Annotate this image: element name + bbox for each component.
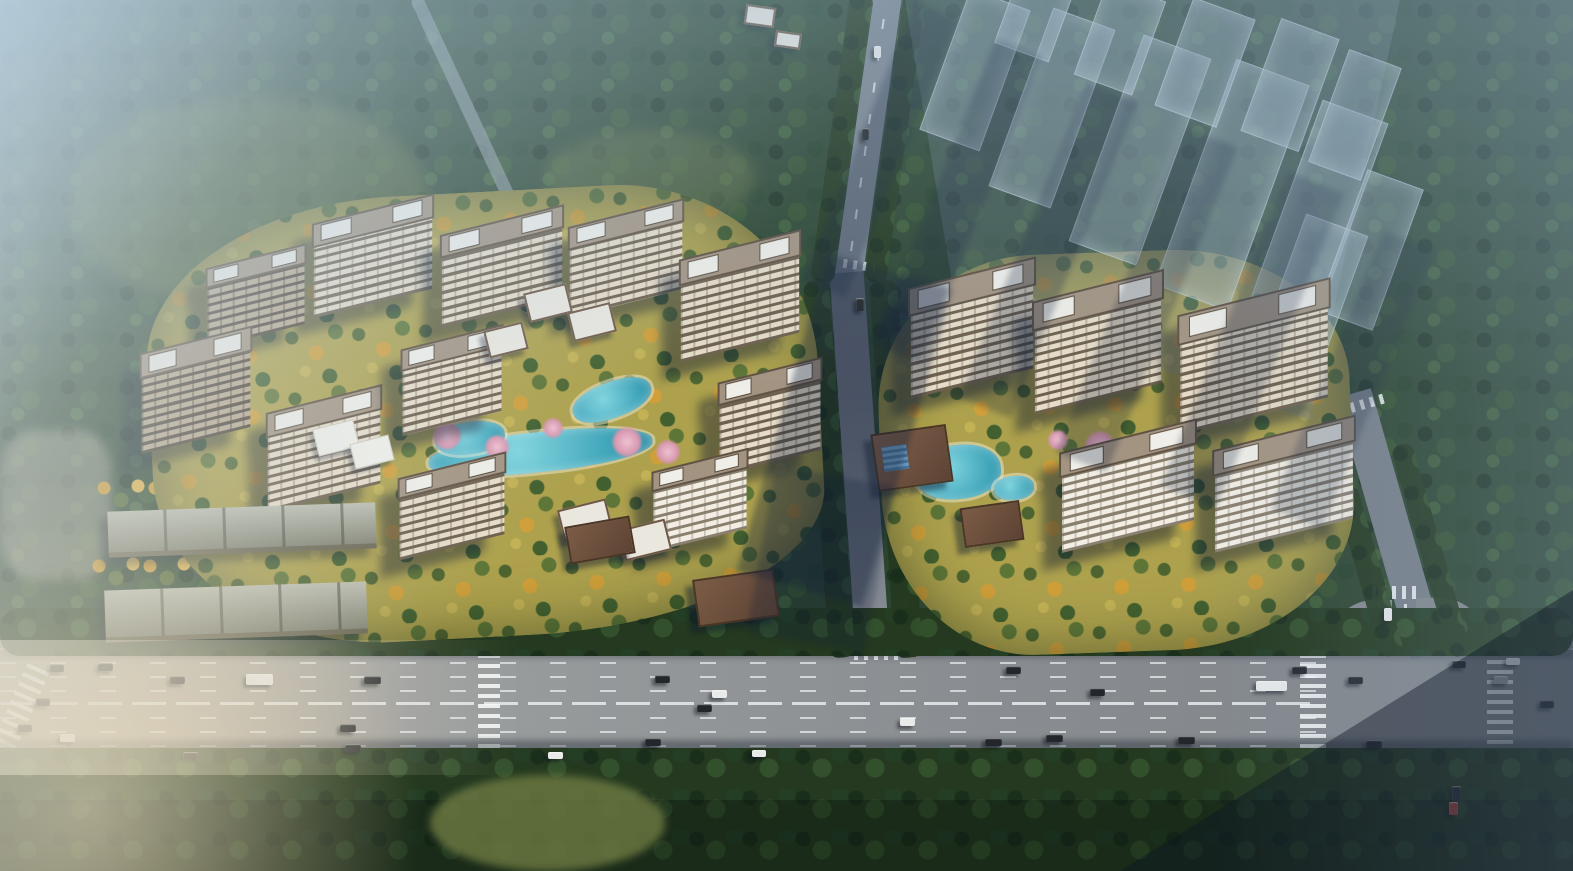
- tower-facade: [720, 381, 821, 475]
- vehicle: [697, 704, 712, 712]
- sunlight-glare: [0, 0, 1573, 871]
- vehicle: [1506, 658, 1520, 665]
- future-phase-massing: [994, 0, 1076, 63]
- residential-tower: [268, 384, 381, 511]
- tower-facade: [442, 229, 562, 328]
- pond: [912, 441, 1003, 504]
- low-rise-building: [774, 30, 802, 49]
- warehouse-building: [104, 581, 368, 642]
- lane-marking: [0, 676, 1320, 678]
- main-boulevard: [0, 648, 1573, 760]
- south-tree-belt: [0, 748, 1573, 871]
- vehicle: [712, 690, 727, 698]
- penthouse-box: [1151, 427, 1183, 450]
- building-shadow: [873, 38, 1043, 363]
- penthouse-box: [272, 250, 295, 268]
- low-rise-building: [557, 498, 613, 541]
- intersection-flare: [1362, 756, 1448, 808]
- future-phase-massing: [1252, 214, 1369, 387]
- tower-facade: [681, 257, 799, 363]
- grass-clearing: [430, 775, 665, 871]
- tower-roof: [311, 193, 434, 248]
- median-line: [0, 702, 1320, 705]
- intersection-flare: [1416, 598, 1488, 654]
- sky-haze: [0, 0, 1573, 871]
- vehicle: [1046, 734, 1063, 742]
- vehicle: [548, 752, 563, 759]
- crosswalk: [478, 652, 500, 758]
- vehicle: [655, 675, 670, 683]
- road-edge-line: [0, 648, 1573, 650]
- vehicle: [900, 718, 915, 726]
- tower-roof: [1177, 277, 1330, 346]
- penthouse-box: [577, 222, 604, 242]
- intersection-flare: [1330, 600, 1392, 652]
- meadow-clearing: [70, 95, 430, 310]
- penthouse-box: [1308, 423, 1341, 447]
- residential-tower: [570, 199, 683, 318]
- turn-arrow-marking: [1404, 604, 1407, 615]
- forest-trail-road: [410, 0, 530, 231]
- street-tree-row: [864, 0, 926, 284]
- vacant-lot: [0, 430, 112, 580]
- blossom-trees: [1048, 430, 1068, 450]
- penthouse-box: [470, 458, 495, 476]
- low-rise-building: [523, 283, 573, 323]
- crosswalk: [0, 661, 50, 758]
- residential-tower: [1215, 415, 1353, 552]
- penthouse-box: [1043, 296, 1074, 321]
- pond: [426, 420, 654, 483]
- blossom-trees: [433, 422, 461, 450]
- penthouse-box: [1120, 277, 1151, 302]
- penthouse-box: [727, 379, 751, 399]
- pond: [993, 474, 1035, 502]
- pond: [567, 369, 656, 431]
- atmospheric-haze: [0, 0, 1573, 871]
- residential-tower: [653, 448, 746, 552]
- tower-facade: [268, 410, 381, 511]
- penthouse-box: [214, 264, 237, 282]
- residential-tower: [1180, 278, 1327, 434]
- sports-court: [349, 435, 394, 470]
- penthouse-box: [409, 346, 433, 365]
- building-shadow: [737, 253, 953, 606]
- blossom-trees: [612, 427, 642, 457]
- vehicle: [1090, 688, 1105, 696]
- street-tree-row: [0, 608, 1573, 656]
- crosswalk: [1300, 650, 1326, 758]
- residential-tower: [681, 230, 799, 363]
- vehicle: [1366, 740, 1382, 748]
- vehicle: [1452, 660, 1466, 668]
- tower-roof: [398, 451, 507, 500]
- residential-tower: [142, 326, 251, 454]
- penthouse-box: [149, 349, 175, 371]
- residential-tower: [1035, 270, 1161, 415]
- lane-marking: [0, 745, 1320, 747]
- crosswalk: [1437, 815, 1491, 840]
- penthouse-box: [760, 237, 789, 260]
- vehicle: [340, 724, 356, 732]
- gate-pavilion: [960, 500, 1025, 548]
- penthouse-box: [919, 283, 949, 308]
- road-edge-line: [0, 756, 1573, 758]
- cross-road-east-south: [1420, 746, 1525, 871]
- penthouse-box: [1071, 447, 1103, 470]
- tower-facade: [314, 218, 432, 318]
- vehicle: [60, 734, 75, 742]
- crosswalk: [1487, 648, 1513, 754]
- vehicle: [874, 46, 881, 58]
- glass-skylight: [881, 444, 909, 472]
- tower-facade: [570, 222, 683, 317]
- golden-tree-band: [90, 556, 375, 586]
- tower-roof: [718, 357, 823, 407]
- site-entry-road: [830, 271, 891, 658]
- penthouse-box: [716, 454, 738, 471]
- residential-tower: [442, 205, 562, 328]
- vehicle: [1449, 802, 1458, 815]
- vehicle-layer: [0, 0, 1573, 871]
- tower-roof: [401, 324, 504, 372]
- vehicle: [246, 674, 273, 685]
- shadow-layer: [0, 0, 1573, 871]
- tree-shadow: [0, 645, 1573, 658]
- gate-pavilion: [564, 516, 636, 565]
- aerial-rendering: [0, 0, 1573, 871]
- penthouse-box: [343, 392, 370, 414]
- tower-roof: [908, 256, 1035, 317]
- street-tree-row: [1315, 421, 1404, 658]
- low-rise-building: [744, 4, 776, 28]
- warehouse-building: [107, 502, 376, 557]
- tower-facade: [1215, 442, 1353, 553]
- tower-facade: [1062, 445, 1194, 553]
- penthouse-box: [689, 255, 718, 278]
- water-layer: [0, 0, 1573, 871]
- low-rise-building: [483, 322, 529, 359]
- future-phase-massing: [1069, 34, 1212, 265]
- south-sidewalk: [0, 758, 1573, 774]
- residential-tower: [403, 324, 502, 435]
- penthouse-box: [523, 212, 552, 233]
- street-tree-row: [810, 0, 874, 284]
- arterial-road-north: [832, 0, 902, 285]
- vehicle: [1006, 666, 1021, 674]
- vehicle: [183, 752, 198, 759]
- vehicle: [1348, 676, 1363, 684]
- crosswalk: [1372, 586, 1418, 599]
- tower-facade: [1180, 309, 1327, 434]
- street-tree-row: [1390, 441, 1472, 659]
- clubhouse-pavilion: [870, 424, 953, 492]
- residential-tower: [314, 194, 432, 318]
- penthouse-box: [645, 205, 672, 225]
- blossom-trees: [543, 418, 563, 438]
- penthouse-box: [215, 333, 241, 355]
- vehicle: [18, 724, 32, 732]
- blossom-layer: [0, 0, 1573, 871]
- building-shadow: [959, 82, 1137, 418]
- west-cluster-grounds: [139, 175, 831, 654]
- atmospheric-haze: [0, 0, 1573, 871]
- vehicle: [50, 664, 64, 672]
- tower-roof: [678, 229, 801, 286]
- tower-roof: [1032, 269, 1163, 331]
- building-shadow: [802, 2, 957, 297]
- lane-marking: [0, 731, 1320, 733]
- vehicle: [98, 663, 113, 671]
- building-shadow: [746, 466, 894, 654]
- penthouse-box: [1279, 286, 1315, 314]
- lane-marking: [0, 662, 1320, 664]
- residential-tower: [911, 257, 1033, 399]
- vehicle: [36, 698, 50, 706]
- future-phase-massing: [1154, 59, 1309, 311]
- future-phase-massing: [1074, 0, 1166, 96]
- gate-pavilion: [692, 569, 780, 628]
- vehicle: [1178, 736, 1195, 744]
- penthouse-box: [1190, 309, 1226, 337]
- tower-roof: [265, 384, 382, 439]
- warm-light-tint: [0, 0, 1573, 871]
- penthouse-box: [322, 219, 351, 240]
- lane-marking: [0, 690, 1320, 692]
- building-shadow: [1161, 171, 1344, 509]
- meadow-clearing: [545, 130, 755, 225]
- penthouse-box: [275, 409, 302, 431]
- blossom-trees: [485, 435, 509, 459]
- building-layer: [0, 0, 1573, 871]
- tree-shadow: [0, 740, 1573, 758]
- future-phase-massing: [1316, 169, 1424, 330]
- sunlight-glare: [0, 640, 520, 775]
- vehicle: [1494, 676, 1508, 684]
- residential-tower: [207, 244, 304, 349]
- tower-facade: [400, 473, 505, 560]
- future-phase-massing: [1154, 0, 1255, 127]
- future-phase-massing: [988, 7, 1115, 208]
- future-phase-massing-layer: [0, 0, 1573, 871]
- tower-roof: [439, 204, 564, 259]
- street-tree-row: [869, 279, 923, 658]
- vehicle: [862, 128, 869, 140]
- low-rise-building: [618, 519, 672, 562]
- crosswalk: [1349, 393, 1386, 413]
- residential-tower: [1062, 419, 1194, 553]
- sports-court: [312, 419, 360, 456]
- tower-facade: [911, 286, 1033, 399]
- building-shadow: [1055, 127, 1237, 472]
- pond: [433, 417, 507, 458]
- penthouse-box: [450, 230, 479, 251]
- tower-roof: [1059, 418, 1196, 478]
- tower-roof: [139, 325, 252, 379]
- crosswalk: [854, 648, 898, 660]
- forest-background: [0, 0, 1573, 871]
- forest-shade: [0, 800, 1573, 871]
- vehicle: [985, 738, 1002, 746]
- future-phase-massing: [1247, 100, 1388, 331]
- street-tree-row: [803, 280, 855, 659]
- tower-facade: [207, 265, 304, 349]
- future-phase-massing: [1240, 18, 1339, 152]
- vehicle: [1384, 608, 1392, 621]
- tower-facade: [1035, 299, 1161, 414]
- penthouse-box: [1224, 444, 1257, 468]
- east-cluster-grounds: [873, 244, 1359, 660]
- low-rise-building: [567, 302, 617, 342]
- vehicle: [752, 750, 766, 757]
- vehicle: [1452, 786, 1461, 801]
- future-phase-haze: [0, 0, 1573, 871]
- residential-tower: [720, 357, 821, 475]
- vehicle: [170, 676, 185, 684]
- tower-roof: [652, 448, 749, 493]
- blossom-trees: [1085, 431, 1115, 461]
- lane-marking: [0, 717, 1320, 719]
- penthouse-box: [407, 474, 432, 492]
- future-phase-massing: [919, 0, 1030, 151]
- penthouse-box: [787, 364, 811, 384]
- intersection-flare: [1492, 756, 1562, 806]
- future-phase-massing: [1308, 49, 1402, 181]
- tower-roof: [1212, 415, 1355, 478]
- corner-shadow: [0, 0, 1573, 871]
- vehicle: [1292, 666, 1307, 674]
- vehicle: [856, 298, 864, 311]
- vehicle: [345, 744, 361, 752]
- penthouse-box: [393, 201, 422, 222]
- tower-roof: [206, 243, 307, 289]
- tower-roof: [567, 198, 684, 251]
- tower-facade: [653, 469, 746, 552]
- vehicle: [1256, 681, 1287, 691]
- vehicle: [364, 676, 381, 684]
- vehicle: [1540, 700, 1554, 708]
- vehicle: [645, 738, 661, 746]
- penthouse-box: [469, 331, 493, 350]
- tower-facade: [403, 347, 502, 436]
- penthouse-box: [660, 468, 682, 485]
- blossom-trees: [656, 440, 680, 464]
- tower-facade: [142, 352, 251, 454]
- crosswalk: [843, 259, 876, 272]
- golden-tree-band: [95, 478, 385, 508]
- cross-road-east: [1336, 388, 1446, 659]
- north-sidewalk: [0, 634, 1573, 650]
- residential-tower: [400, 452, 505, 561]
- building-shadow: [1270, 231, 1433, 530]
- penthouse-box: [993, 265, 1023, 290]
